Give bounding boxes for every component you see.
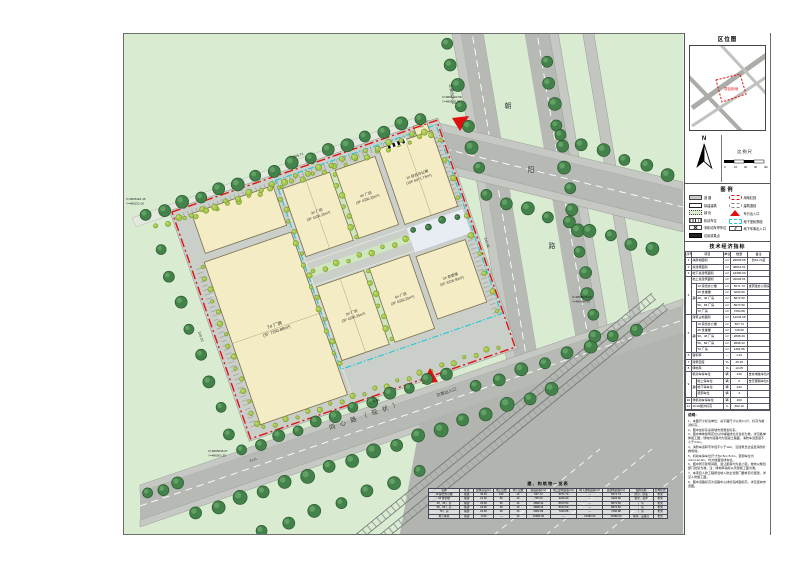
tree-highlight (259, 487, 264, 492)
legend-item-entrance: 车行出入口 (729, 210, 767, 216)
tree-highlight (307, 154, 312, 159)
tree-highlight (177, 215, 180, 218)
tree-highlight (464, 122, 469, 127)
legend-item-building: 拟建建筑 (689, 203, 727, 208)
location-map: 项目用地 (689, 45, 766, 131)
tree-highlight (385, 389, 390, 394)
legend-label: 非机动车停车位 (704, 225, 726, 230)
tree-highlight (586, 342, 592, 348)
legend-item-green: 绿 化 (689, 210, 727, 215)
tree-highlight (177, 298, 182, 303)
table-row: 其中地上停车位辆6含无障碍车位1个 (686, 378, 770, 384)
notes-section: 说明： 1、本图尺寸标注单位：总平面尺寸以米(m)计，标高为绝对标高。 2、图中… (685, 411, 770, 490)
tree-highlight (415, 467, 420, 472)
tree-highlight (516, 364, 522, 370)
indicator-table: 序号 项目 单位 数量 备注 1净用地面积m²29806.88约44.71亩 2… (685, 251, 770, 410)
tree-highlight (214, 503, 220, 509)
location-map-title: 区位图 (685, 33, 770, 44)
tree-highlight (159, 486, 164, 491)
scale-tick: 40m (764, 165, 768, 169)
tree-highlight (392, 441, 397, 446)
scale-tick: 10 (734, 165, 738, 169)
legend-item-redline: 用地红线 (729, 195, 767, 200)
coord-x: X=3806203.58 (442, 95, 462, 99)
note-item: 7、本项目人防工程按当地人防主管部门要求另行报建，详见人防施工图。 (688, 471, 767, 479)
coord-y: Y=486301.55 (208, 454, 226, 458)
table-row: 1净用地面积m²29806.88约44.71亩 (686, 258, 770, 264)
tree-highlight (495, 375, 500, 380)
tree-highlight (379, 128, 384, 133)
tree-highlight (663, 170, 669, 176)
basement-swatch (729, 219, 742, 224)
tree-highlight (481, 410, 487, 416)
coord-x: X=3805948.07 (208, 449, 228, 453)
tree-highlight (225, 430, 230, 435)
tree-highlight (191, 508, 196, 513)
entrance-triangle-swatch (730, 210, 740, 216)
coord-x: X=3806118.45 (126, 197, 146, 201)
building-schedule: 建、构筑物一览表 名称性质建筑高度(m)地上层数地下层数基底面积(m²)地上建筑… (428, 481, 668, 519)
tree-highlight (410, 132, 412, 134)
note-item: 5、机动车停车位尺寸为2.5m×5.3m，装卸车位为4.0m×12.0m，均为地… (688, 454, 767, 462)
tree-highlight (270, 167, 275, 172)
legend-item-trash: 垃圾收集点 (689, 233, 727, 238)
col-header: 单位 (723, 252, 731, 258)
tree-highlight (214, 184, 219, 189)
building-swatch (689, 203, 702, 208)
tree-highlight (567, 205, 572, 210)
coord-y: Y=486580.62 (572, 300, 590, 304)
right-panel: 区位图 项目用地 N 比例尺 0 10 (684, 33, 770, 535)
tree-highlight (200, 207, 202, 209)
scale-tick: 0 (724, 165, 726, 169)
tree-highlight (294, 174, 296, 176)
site-plan-drawing: 3# 厂房 (3F 4336.25m²) 4# 厂房 (3F 4336.25m²… (0, 0, 800, 566)
tree-highlight (589, 311, 594, 316)
tree-highlight (282, 180, 285, 183)
site-plan-sheet: { "map": { "road_vertical_name": ["朝", "… (0, 0, 800, 566)
tree-highlight (257, 441, 262, 446)
tree-highlight (166, 222, 168, 224)
tree-highlight (349, 404, 354, 409)
tree-highlight (400, 139, 402, 141)
tree-highlight (467, 143, 473, 149)
tree-highlight (165, 273, 170, 278)
tree-highlight (274, 431, 279, 436)
col-header: 序号 (686, 252, 692, 258)
tree-highlight (563, 348, 568, 353)
tree-highlight (647, 244, 653, 250)
schedule-title: 建、构筑物一览表 (428, 481, 668, 487)
legend-item-basement: 地下室轮廓线 (729, 219, 767, 224)
tree-highlight (573, 226, 579, 232)
tree-highlight (547, 384, 553, 390)
legend-label: 车行出入口 (744, 211, 760, 216)
legend-section: 图例 道 路 拟建建筑 绿 化 机动车位 非机动车停车位 垃圾收集点 用地红线 … (685, 184, 770, 242)
tree-highlight (309, 506, 315, 512)
tree-highlight (442, 370, 447, 375)
tree-highlight (581, 268, 586, 273)
tree-highlight (436, 425, 442, 431)
tree-highlight (552, 121, 557, 126)
tree-highlight (287, 158, 293, 164)
tree-highlight (406, 385, 411, 390)
indicator-table-title: 技术经济指标 (685, 242, 770, 252)
tree-highlight (154, 224, 156, 226)
legend-label: 机动车位 (704, 218, 717, 223)
tree-highlight (471, 382, 476, 387)
legend-item-nonmotor: 非机动车停车位 (689, 225, 727, 230)
tree-highlight (185, 326, 190, 331)
legend-title: 图例 (687, 185, 768, 194)
tree-highlight (302, 471, 308, 477)
tree-highlight (565, 217, 570, 222)
tree-highlight (386, 140, 389, 143)
table-row: 其中1# 综合办公楼m²5071.73含研发办公用房 (686, 283, 770, 289)
tree-highlight (446, 60, 451, 65)
scale-bar-block: 比例尺 0 10 20 30 40m (722, 135, 768, 182)
tree-highlight (331, 412, 336, 417)
tree-highlight (197, 193, 202, 198)
tree-highlight (642, 161, 647, 166)
tree-highlight (325, 462, 330, 467)
road-swatch (689, 195, 702, 200)
legend-label: 道 路 (704, 195, 711, 200)
legend-label: 拟建建筑 (704, 203, 717, 208)
note-item: 1、本图尺寸标注单位：总平面尺寸以米(m)计，标高为绝对标高。 (688, 419, 767, 427)
coord-x: X=3806036.24 (572, 295, 592, 299)
compass-scale-section: N 比例尺 0 10 20 30 40m (685, 134, 770, 184)
tree-highlight (416, 115, 421, 120)
coord-y: Y=486231.06 (126, 202, 144, 206)
tree-highlight (347, 456, 353, 462)
legend-label: 地下室轮廓线 (744, 219, 763, 224)
tree-highlight (632, 326, 637, 331)
tree-highlight (543, 58, 548, 63)
green-swatch (689, 210, 702, 215)
tree-highlight (173, 478, 178, 483)
tree-highlight (423, 375, 428, 380)
legend-item-ramp: 地下车库出入口 (729, 226, 767, 231)
tree-highlight (342, 140, 348, 146)
road-name-char: 路 (549, 241, 556, 250)
tree-highlight (337, 499, 342, 504)
tree-highlight (284, 519, 289, 524)
tree-highlight (280, 477, 286, 483)
tree-highlight (204, 377, 209, 382)
tree-highlight (340, 157, 342, 159)
trash-swatch (689, 233, 702, 238)
tree-highlight (233, 180, 239, 186)
tree-highlight (312, 417, 317, 422)
tree-highlight (609, 332, 614, 337)
legend-label: 地下车库出入口 (744, 226, 766, 231)
tree-highlight (558, 142, 563, 147)
tree-highlight (362, 486, 367, 491)
tree-highlight (541, 359, 546, 364)
tree-highlight (197, 351, 202, 356)
tree-highlight (246, 190, 249, 193)
location-map-sketch: 项目用地 (690, 46, 766, 131)
tree-highlight (260, 189, 262, 191)
tree-highlight (389, 478, 395, 484)
tree-highlight (251, 172, 256, 177)
tree-highlight (238, 446, 243, 451)
tree-highlight (566, 184, 571, 189)
legend-label: 建筑退线 (744, 203, 757, 208)
tree-highlight (144, 489, 149, 494)
legend-item-parking: 机动车位 (689, 218, 727, 223)
tree-highlight (177, 197, 183, 203)
tree-highlight (368, 446, 374, 452)
scale-tick: 20 (744, 165, 748, 169)
tree-highlight (212, 205, 215, 208)
table-row: 9机动车停车位辆249含充电桩车位35个 (686, 372, 770, 378)
compass: N (687, 135, 722, 182)
legend-item-retreat: 建筑退线 (729, 203, 767, 208)
redline-swatch (729, 195, 742, 200)
tree-highlight (544, 79, 549, 84)
scale-label: 比例尺 (737, 149, 753, 155)
tree-highlight (157, 246, 162, 251)
note-item: 3、图中单体建筑定位以外墙轴线交点坐标为准，详见各单体施工图；场地内道路均为混凝… (688, 432, 767, 444)
indicator-section: 技术经济指标 序号 项目 单位 数量 备注 1净用地面积m²29806.88约4… (685, 242, 770, 412)
coord-y: Y=486512.36 (442, 100, 460, 104)
schedule-table: 名称性质建筑高度(m)地上层数地下层数基底面积(m²)地上建筑面积(m²)地下建… (428, 488, 668, 520)
tree-highlight (190, 214, 192, 216)
note-item: 4、消防车道转弯半径不小于12m，沿建筑长边设置消防扑救场地。 (688, 445, 767, 453)
note-item: 6、图中所示建筑间距、退让距离均为最小值，放线以规划部门批复为准。注：绿地率指标… (688, 462, 767, 470)
tree-highlight (235, 492, 241, 498)
tree-highlight (270, 182, 272, 184)
tree-highlight (352, 155, 355, 158)
tree-highlight (316, 165, 319, 168)
tree-highlight (160, 206, 165, 211)
north-arrow-icon (693, 142, 715, 172)
table-row: 11±0.00绝对标高m662.10 (686, 403, 770, 409)
legend-label: 绿 化 (704, 210, 711, 215)
parking-swatch (689, 218, 702, 223)
tree-highlight (217, 404, 222, 409)
tree-highlight (413, 430, 419, 436)
nonmotor-swatch (689, 225, 702, 230)
tree-highlight (620, 156, 625, 161)
tree-highlight (523, 203, 529, 209)
tree-highlight (376, 147, 378, 149)
tree-highlight (236, 197, 238, 199)
legend-item-road: 道 路 (689, 195, 727, 200)
tree-highlight (556, 131, 561, 136)
tree-highlight (585, 226, 591, 232)
tree-highlight (599, 145, 605, 151)
note-item: 8、图中道路标高为道路中心线处完成面标高，详见竖向布置图。 (688, 480, 767, 488)
tree-highlight (422, 130, 425, 133)
road-name-char: 朝 (505, 102, 512, 110)
scale-tick: 30 (754, 165, 758, 169)
schedule-row: 地下车库拟建-5.90—1F16380.00—16380.0016380.00车… (429, 514, 668, 518)
locmap-parcel-label: 项目用地 (724, 86, 739, 91)
tree-highlight (361, 132, 366, 137)
tree-highlight (475, 164, 480, 169)
tree-highlight (257, 527, 262, 532)
tree-highlight (577, 140, 582, 145)
tree-highlight (306, 172, 308, 174)
road-name-char: 阳 (528, 165, 535, 174)
tree-highlight (607, 231, 612, 236)
retreat-swatch (729, 203, 742, 208)
tree-highlight (396, 119, 402, 125)
tree-highlight (294, 427, 299, 432)
tree-highlight (559, 163, 565, 169)
tree-highlight (482, 191, 487, 196)
tree-highlight (364, 149, 366, 151)
tree-highlight (550, 99, 556, 105)
tree-highlight (324, 145, 329, 150)
tree-highlight (502, 199, 507, 204)
tree-highlight (502, 399, 508, 405)
tree-highlight (575, 248, 580, 253)
tree-highlight (626, 240, 631, 245)
tree-highlight (443, 40, 448, 45)
legend-label: 用地红线 (744, 195, 757, 200)
tree-highlight (224, 199, 226, 201)
notes-title: 说明： (688, 413, 767, 418)
legend-label: 垃圾收集点 (704, 233, 720, 238)
tree-highlight (590, 332, 595, 337)
tree-highlight (330, 164, 332, 166)
scale-bar: 0 10 20 30 40m (722, 157, 768, 169)
ramp-swatch (729, 226, 742, 231)
tree-highlight (458, 415, 463, 420)
tree-highlight (141, 211, 146, 216)
tree-highlight (526, 394, 531, 399)
tree-highlight (544, 213, 549, 218)
